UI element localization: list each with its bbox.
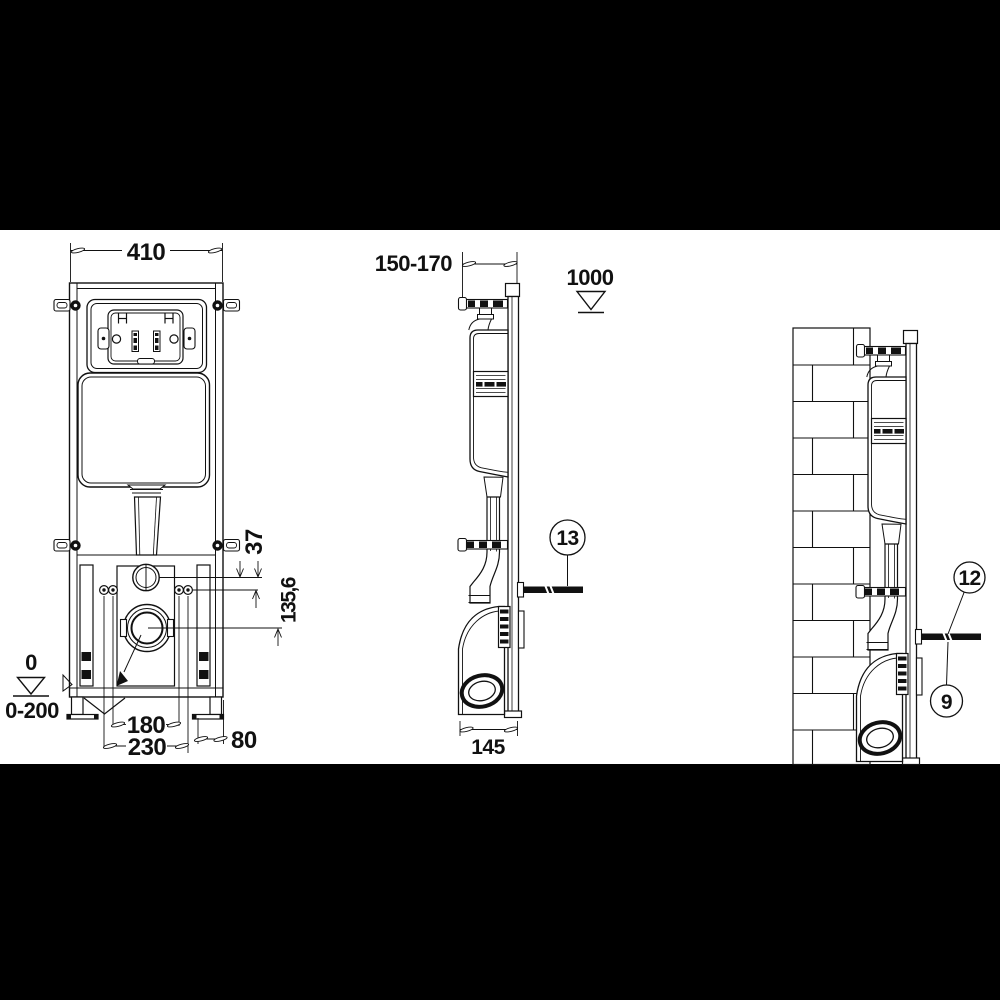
outlet-depth-label: 145 (471, 736, 505, 759)
plate-notch (138, 359, 155, 365)
datum-height-label: 1000 (567, 265, 614, 290)
outer-spacing-label: 230 (128, 734, 167, 761)
stud-callout-upper-label: 12 (958, 567, 980, 590)
cistern-front (78, 373, 210, 487)
technical-drawing-page: 410 (0, 0, 1000, 1000)
width-dimension-label: 410 (127, 239, 166, 266)
depth-range-label: 150-170 (375, 251, 453, 276)
access-panel (87, 300, 207, 373)
outlet-offset-label: 135,6 (278, 577, 301, 623)
letterbox-top (0, 0, 1000, 230)
datum-zero-label: 0 (25, 650, 37, 675)
stud-callout-label: 13 (556, 527, 578, 550)
edge-offset-label: 80 (231, 727, 257, 754)
floor-range-label: 0-200 (5, 698, 59, 723)
letterbox-bottom (0, 764, 1000, 1000)
collar-offset-label: 37 (241, 529, 268, 555)
screw-hole (112, 335, 120, 343)
screw-hole (170, 335, 178, 343)
stud-callout-lower-label: 9 (941, 691, 952, 714)
